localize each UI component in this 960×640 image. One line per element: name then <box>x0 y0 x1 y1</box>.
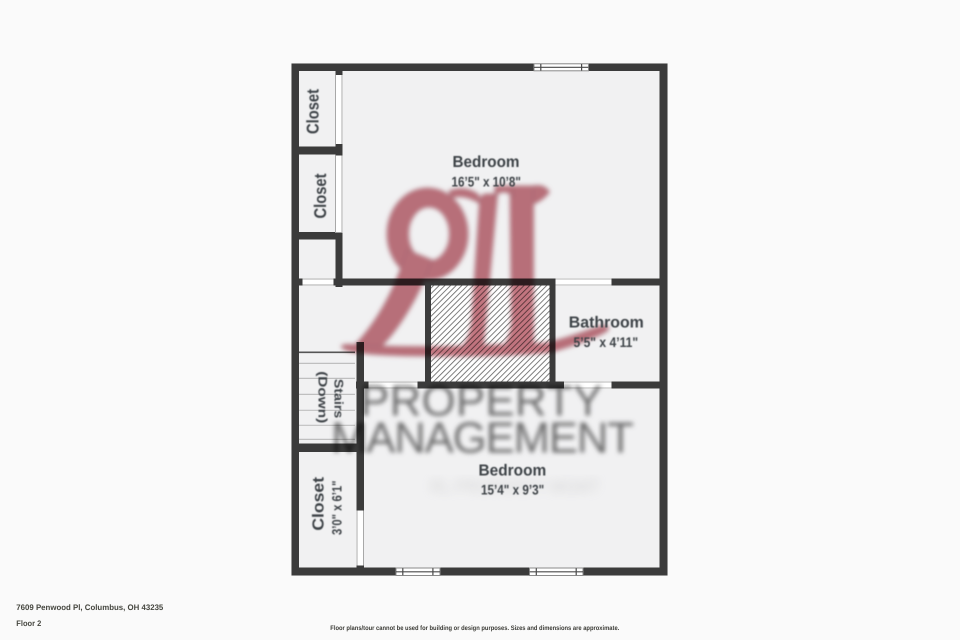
svg-text:Closet: Closet <box>311 173 330 218</box>
svg-text:Bedroom: Bedroom <box>453 154 520 171</box>
svg-text:Closet: Closet <box>310 476 327 530</box>
svg-text:Floor 2: Floor 2 <box>16 619 42 628</box>
svg-text:Bedroom: Bedroom <box>479 462 547 479</box>
svg-text:15’4" x 9’3": 15’4" x 9’3" <box>481 481 544 497</box>
svg-text:MANAGEMENT: MANAGEMENT <box>331 414 633 462</box>
svg-text:Floor plans/tour cannot be use: Floor plans/tour cannot be used for buil… <box>330 625 619 632</box>
svg-text:5’5" x 4’11": 5’5" x 4’11" <box>574 334 639 350</box>
svg-text:7609 Penwood Pl, Columbus, OH: 7609 Penwood Pl, Columbus, OH 43235 <box>16 603 164 612</box>
svg-text:3’0" x 6’1": 3’0" x 6’1" <box>329 481 344 535</box>
svg-text:16’5" x 10’8": 16’5" x 10’8" <box>452 174 521 190</box>
svg-text:Closet: Closet <box>304 89 323 134</box>
svg-text:Stairs: Stairs <box>331 379 345 418</box>
svg-text:Bathroom: Bathroom <box>569 314 644 331</box>
svg-text:(Down): (Down) <box>315 371 329 423</box>
